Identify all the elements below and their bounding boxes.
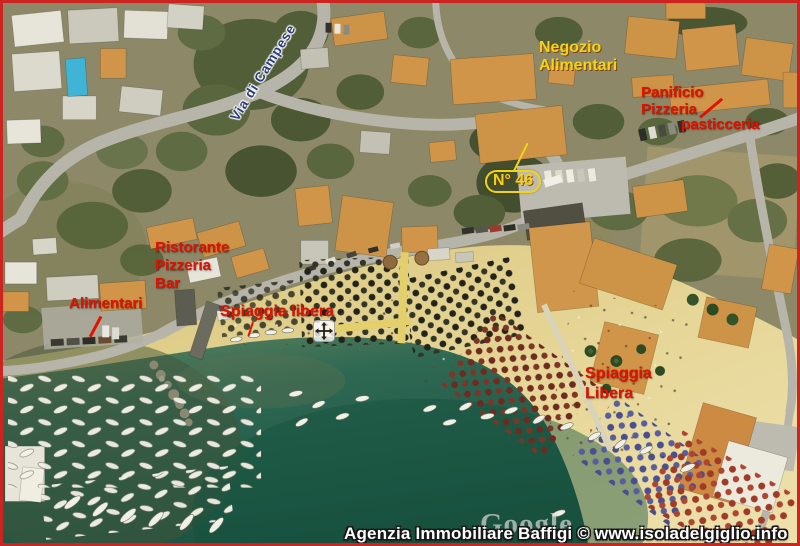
pan-control-icon[interactable] — [313, 320, 335, 342]
credit-watermark: Agenzia Immobiliare Baffigi © www.isolad… — [344, 524, 788, 544]
annotated-aerial-map: Via di Campese Negozio Alimentari Panifi… — [0, 0, 800, 546]
aerial-photo — [3, 3, 797, 543]
house-number-badge: N° 46 — [485, 170, 541, 193]
